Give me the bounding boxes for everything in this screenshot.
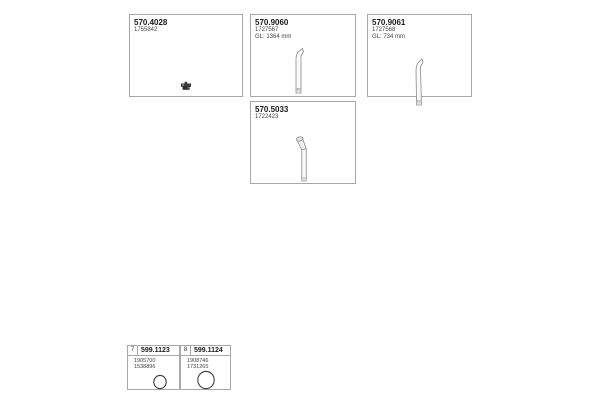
oem-number: 1905700 [128,356,179,364]
oem-number: 1727568 [368,27,471,34]
part-number: 570.4028 [130,15,242,27]
oem-number: 1727567 [251,27,355,34]
part-card-599-1123[interactable]: 7 599.1123 1905700 1538896 [127,345,180,390]
oem-number: 1908746 [181,356,230,364]
length-note: GL: 1364 mm [251,34,355,41]
tail-pipe-drawing [409,57,427,107]
part-card-599-1124[interactable]: 8 599.1124 1908746 1731265 [180,345,231,390]
part-number: 599.1124 [191,346,223,355]
bent-pipe-drawing [293,135,309,183]
card-header: 8 599.1124 [181,346,230,356]
part-number: 570.9060 [251,15,355,27]
part-card-570-4028[interactable]: 570.4028 1755842 [129,14,243,97]
straight-pipe-drawing [289,47,309,97]
catalog-page: 570.4028 1755842 570.9060 1727567 GL: 13… [0,0,600,400]
part-number: 599.1123 [138,346,170,355]
oem-number: 1722423 [251,114,355,121]
gasket-ring-drawing [195,370,217,390]
clamp-icon [180,81,192,92]
part-card-570-9060[interactable]: 570.9060 1727567 GL: 1364 mm [250,14,356,97]
part-number: 570.5033 [251,102,355,114]
part-number: 570.9061 [368,15,471,27]
length-note: GL: 734 mm [368,34,471,41]
index-badge: 8 [181,346,191,355]
oem-number: 1538896 [128,364,179,370]
gasket-ring-drawing [151,374,169,390]
part-card-570-5033[interactable]: 570.5033 1722423 [250,101,356,184]
part-card-570-9061[interactable]: 570.9061 1727568 GL: 734 mm [367,14,472,97]
oem-number: 1755842 [130,27,242,34]
card-header: 7 599.1123 [128,346,179,356]
index-badge: 7 [128,346,138,355]
